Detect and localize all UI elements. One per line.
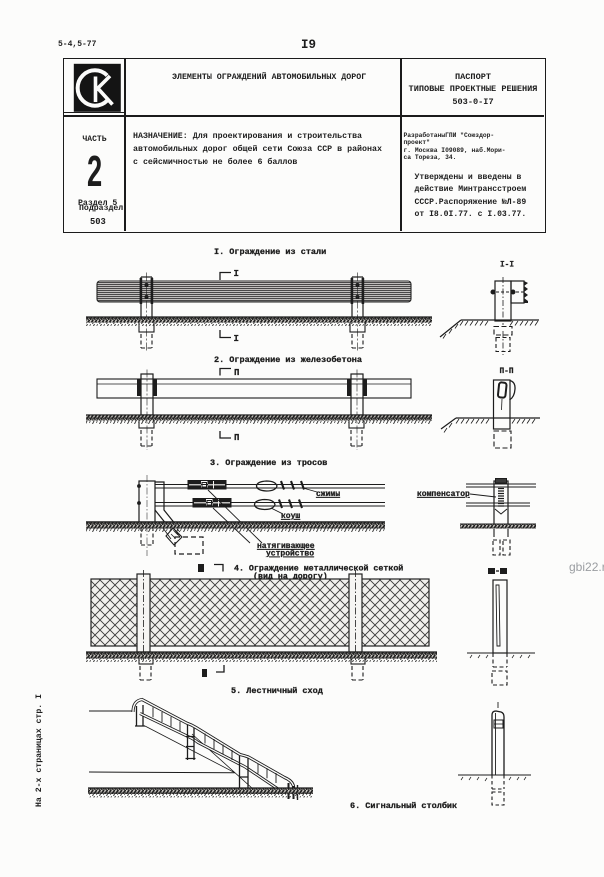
svg-text:5. Лестничный сход: 5. Лестничный сход xyxy=(231,686,323,696)
svg-text:6. Сигнальный столбик: 6. Сигнальный столбик xyxy=(350,800,457,811)
svg-text:I: I xyxy=(234,334,239,344)
svg-text:I-I: I-I xyxy=(500,262,514,270)
svg-text:2. Ограждение из железобетона: 2. Ограждение из железобетона xyxy=(214,354,362,365)
svg-text:I: I xyxy=(234,269,239,279)
svg-text:сжимы: сжимы xyxy=(316,490,340,499)
svg-text:П: П xyxy=(234,433,239,443)
svg-text:I. Ограждение из стали: I. Ограждение из стали xyxy=(214,247,326,257)
svg-text:компенсатор: компенсатор xyxy=(417,490,470,499)
svg-text:3. Ограждение из тросов: 3. Ограждение из тросов xyxy=(210,458,327,468)
svg-text:коуш: коуш xyxy=(281,512,300,521)
svg-text:П-П: П-П xyxy=(500,368,514,376)
svg-text:устройство: устройство xyxy=(266,550,314,559)
svg-text:П: П xyxy=(234,368,239,378)
